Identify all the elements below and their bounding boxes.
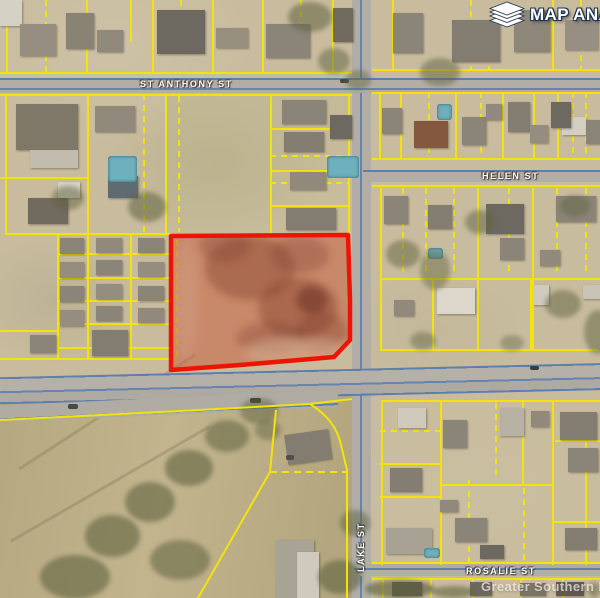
highlighted-parcel <box>171 230 355 370</box>
mls-watermark: Greater Southern MLS <box>481 579 600 594</box>
map-canvas[interactable]: ST ANTHONY ST HELEN ST LAKE ST ROSALIE S… <box>0 0 600 598</box>
layers-icon <box>487 1 527 28</box>
street-label-helen: HELEN ST <box>482 171 539 181</box>
street-label-rosalie: ROSALIE ST <box>466 566 536 576</box>
street-label-lake: LAKE ST <box>356 522 366 572</box>
logo-text: MAP ANA <box>530 5 600 25</box>
field-parcel-lines <box>0 399 352 598</box>
street-label-st-anthony: ST ANTHONY ST <box>140 79 233 89</box>
overlay-svg <box>0 0 600 598</box>
map-analytics-logo: MAP ANA <box>487 1 600 28</box>
